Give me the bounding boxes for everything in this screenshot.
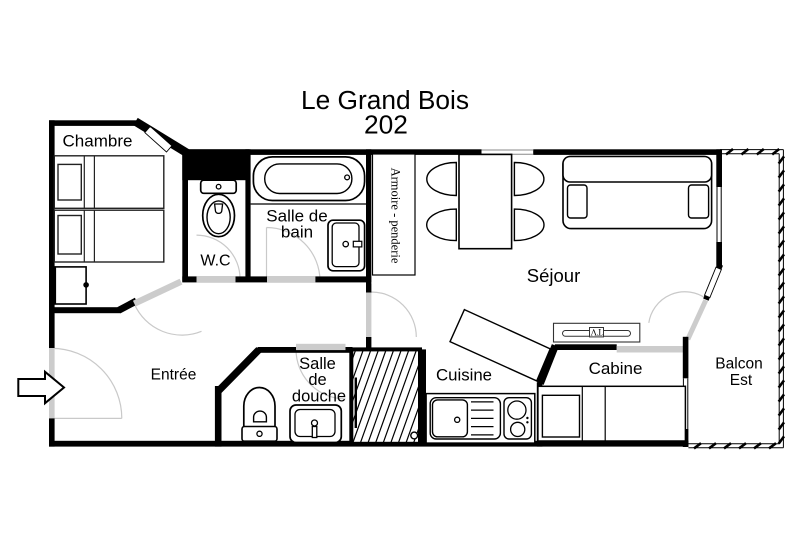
svg-text:douche: douche [292,387,346,405]
svg-text:Balcon: Balcon [715,355,762,372]
svg-text:Séjour: Séjour [527,265,580,286]
svg-text:Chambre: Chambre [63,132,133,151]
svg-text:de: de [308,371,326,389]
svg-text:202: 202 [364,110,408,140]
svg-text:Cuisine: Cuisine [436,366,492,385]
svg-text:TV: TV [590,327,602,337]
svg-text:Cabine: Cabine [589,359,643,378]
svg-text:bain: bain [281,223,313,242]
svg-text:W.C: W.C [200,253,230,270]
svg-text:Est: Est [730,372,753,389]
svg-text:Entrée: Entrée [151,367,197,384]
svg-text:Armoire - penderie: Armoire - penderie [389,168,403,264]
